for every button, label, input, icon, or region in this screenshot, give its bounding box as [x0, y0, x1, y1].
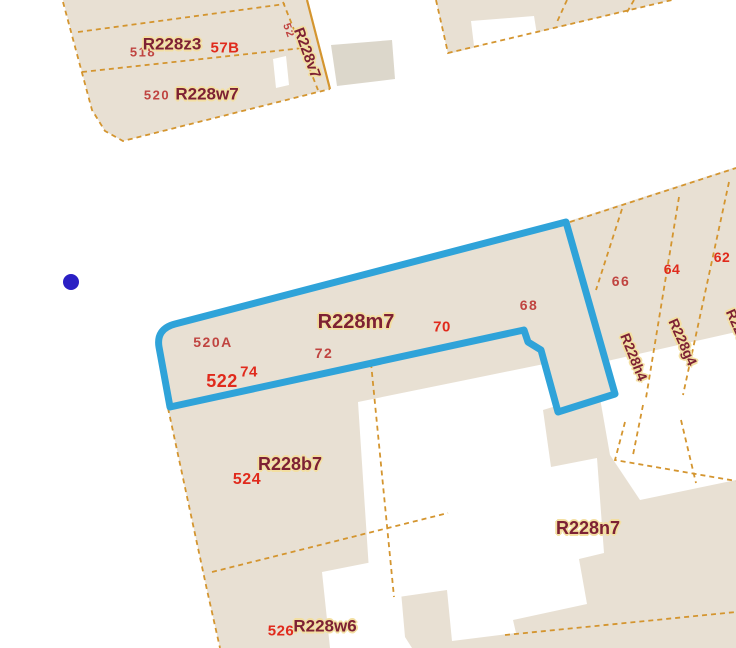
building-footprint: [471, 16, 538, 46]
map-viewport[interactable]: 518R228z357B520R228w752R228v7520A5227472…: [0, 0, 736, 648]
building-footprint-gray: [331, 40, 395, 86]
building-footprint: [322, 557, 412, 648]
building-footprint: [64, 91, 80, 111]
map-canvas[interactable]: [0, 0, 736, 648]
selected-point-marker[interactable]: [63, 274, 79, 290]
